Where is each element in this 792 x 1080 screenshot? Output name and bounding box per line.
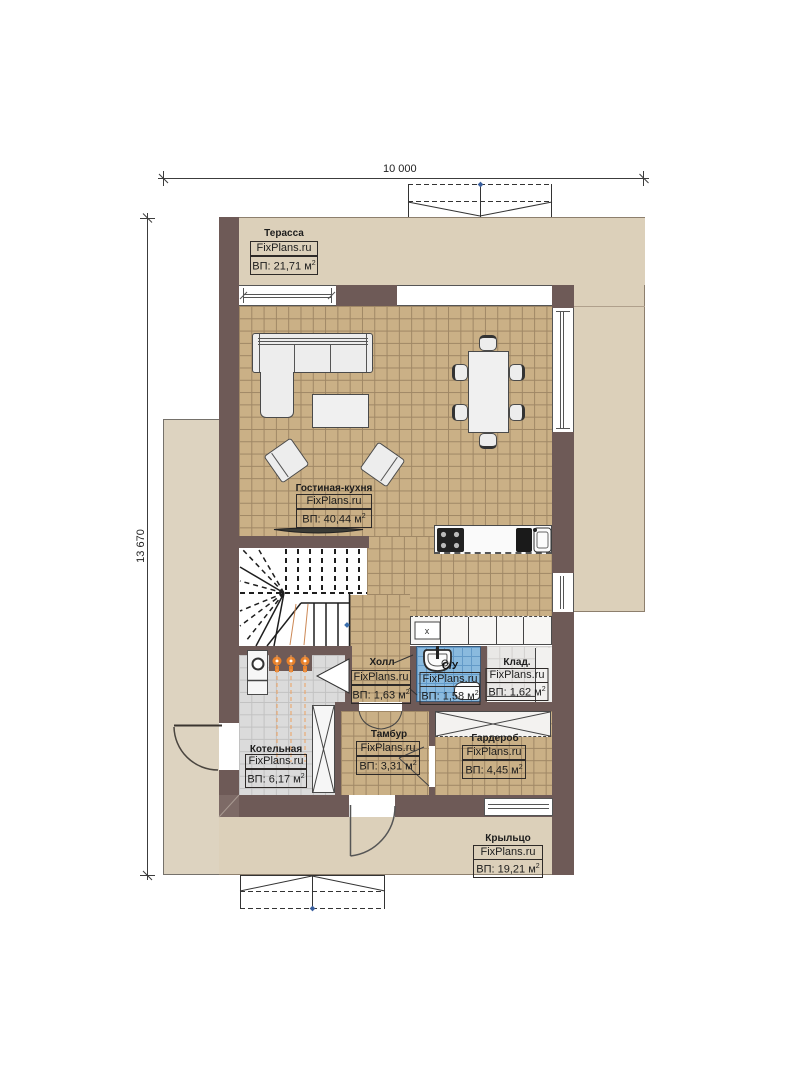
svg-text:x: x xyxy=(425,626,430,636)
